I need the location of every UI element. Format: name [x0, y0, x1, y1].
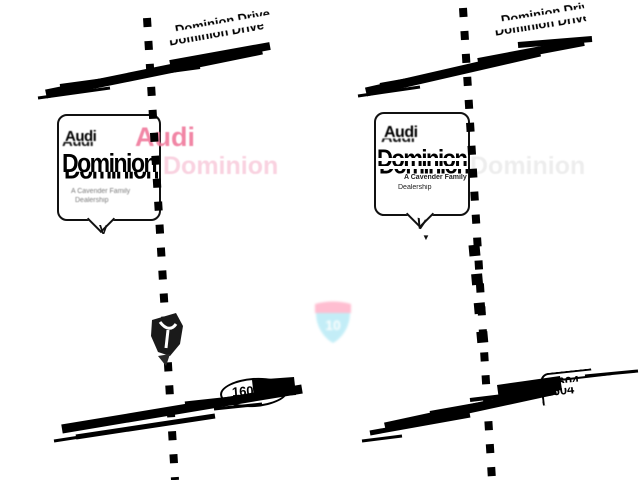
road-dashed-left [147, 18, 175, 480]
road-dashed-right [463, 8, 492, 480]
audi-wordmark: Audi Audi [65, 128, 96, 145]
route-marker-1604-right: 1604 1604 [539, 368, 594, 405]
callout-tagline-line1: A Cavender Family [71, 188, 130, 195]
shield-ghost-icon [151, 313, 183, 366]
pointer-tip-icon: ▼ [422, 233, 430, 242]
route-marker-1604-left: 1604 1604 [219, 376, 289, 410]
road-1604-right [362, 371, 638, 441]
audi-wordmark: Audi Audi [384, 124, 418, 142]
callout-tagline-line1: A Cavender Family [404, 174, 467, 181]
callout-title-gray-ghost: Dominion [470, 152, 585, 181]
callout-title-pink-ghost: Dominion [163, 152, 278, 181]
callout-tagline-line2: Dealership [75, 197, 108, 204]
dealer-callout-left[interactable]: Audi Audi Audi Dominion Dominion Dominio… [57, 114, 161, 221]
dealer-callout-right[interactable]: Audi Audi Dominion Dominion Dominion A C… [374, 112, 470, 216]
glitch-slice [376, 158, 468, 161]
callout-tagline-line2: Dealership [398, 184, 431, 191]
street-label-dominion-drive-left: Dominion Drive Dominion Drive [166, 5, 282, 67]
pointer-v-icon: V [99, 222, 108, 237]
glitch-slice [376, 166, 468, 169]
interstate-10-shield-icon: 10 [312, 297, 354, 347]
street-label-dominion-drive-right: Dominion Drive Dominion Drive [492, 0, 590, 59]
route-marker-ghost: 1604 [545, 381, 575, 399]
roads-overlay [0, 0, 640, 480]
shield-number: 10 [325, 317, 341, 333]
callout-title: Dominion Dominion [62, 148, 156, 178]
map-canvas: Dominion Drive Dominion Drive Dominion D… [0, 0, 640, 480]
